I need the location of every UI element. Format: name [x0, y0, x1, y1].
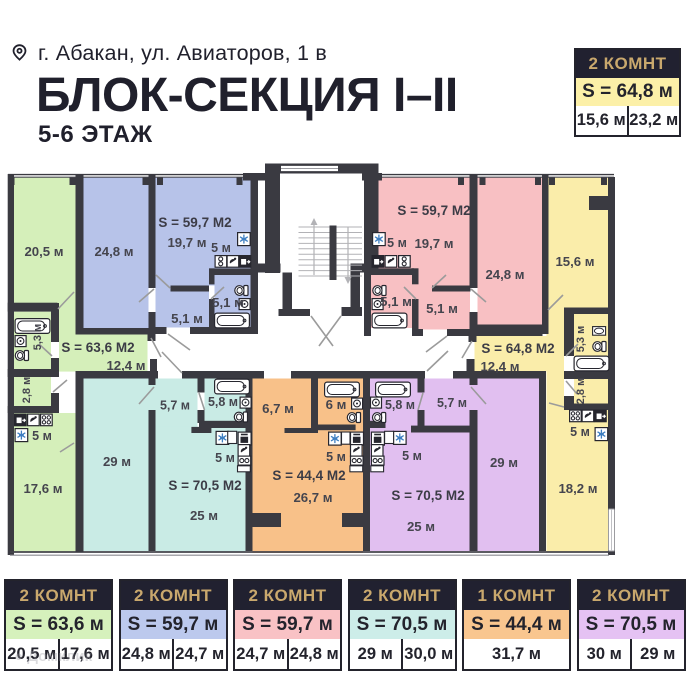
svg-text:18,2 м: 18,2 м: [558, 481, 597, 496]
svg-text:25 м: 25 м: [407, 519, 435, 534]
svg-text:5,1 м: 5,1 м: [212, 295, 244, 310]
svg-text:5,7 м: 5,7 м: [437, 396, 467, 410]
svg-text:S = 59,7 М2: S = 59,7 М2: [158, 215, 231, 230]
svg-text:5 м: 5 м: [215, 451, 235, 465]
svg-text:19,7 м: 19,7 м: [167, 235, 206, 250]
svg-text:5,8 м: 5,8 м: [385, 398, 415, 412]
svg-text:5,1 м: 5,1 м: [426, 301, 458, 316]
svg-text:29 м: 29 м: [103, 454, 131, 469]
svg-text:17,6 м: 17,6 м: [23, 481, 62, 496]
svg-text:S = 64,8 М2: S = 64,8 М2: [481, 341, 554, 356]
svg-text:5,1 м: 5,1 м: [380, 294, 412, 309]
svg-text:12,4 м: 12,4 м: [480, 359, 519, 374]
svg-text:S = 70,5 М2: S = 70,5 М2: [391, 488, 464, 503]
svg-text:26,7 м: 26,7 м: [293, 490, 332, 505]
svg-text:12,4 м: 12,4 м: [106, 358, 145, 373]
svg-text:24,8 м: 24,8 м: [94, 244, 133, 259]
svg-text:S = 70,5 М2: S = 70,5 М2: [168, 478, 241, 493]
svg-text:5 м: 5 м: [32, 429, 52, 443]
svg-text:6,7 м: 6,7 м: [262, 401, 294, 416]
svg-text:5,1 м: 5,1 м: [171, 311, 203, 326]
svg-text:2,8 м: 2,8 м: [21, 377, 33, 404]
svg-text:25 м: 25 м: [190, 508, 218, 523]
svg-text:15,6 м: 15,6 м: [555, 254, 594, 269]
svg-text:5 м: 5 м: [387, 236, 407, 250]
svg-text:S = 59,7 М2: S = 59,7 М2: [397, 203, 470, 218]
svg-text:S = 63,6 М2: S = 63,6 М2: [61, 340, 134, 355]
svg-text:S = 44,4 М2: S = 44,4 М2: [272, 468, 345, 483]
svg-text:5 м: 5 м: [211, 241, 231, 255]
svg-text:24,8 м: 24,8 м: [485, 267, 524, 282]
svg-text:2,8 м: 2,8 м: [575, 378, 587, 405]
svg-text:5 м: 5 м: [570, 425, 590, 439]
svg-text:6 м: 6 м: [326, 397, 347, 412]
svg-text:5,3 м: 5,3 м: [575, 326, 587, 353]
svg-text:29 м: 29 м: [490, 455, 518, 470]
svg-text:20,5 м: 20,5 м: [24, 244, 63, 259]
svg-text:5 м: 5 м: [402, 449, 422, 463]
svg-text:5,7 м: 5,7 м: [160, 399, 190, 413]
svg-text:5,3 м: 5,3 м: [32, 324, 44, 351]
svg-text:5 м: 5 м: [326, 450, 346, 464]
svg-text:5,8 м: 5,8 м: [208, 395, 238, 409]
svg-text:19,7 м: 19,7 м: [414, 236, 453, 251]
